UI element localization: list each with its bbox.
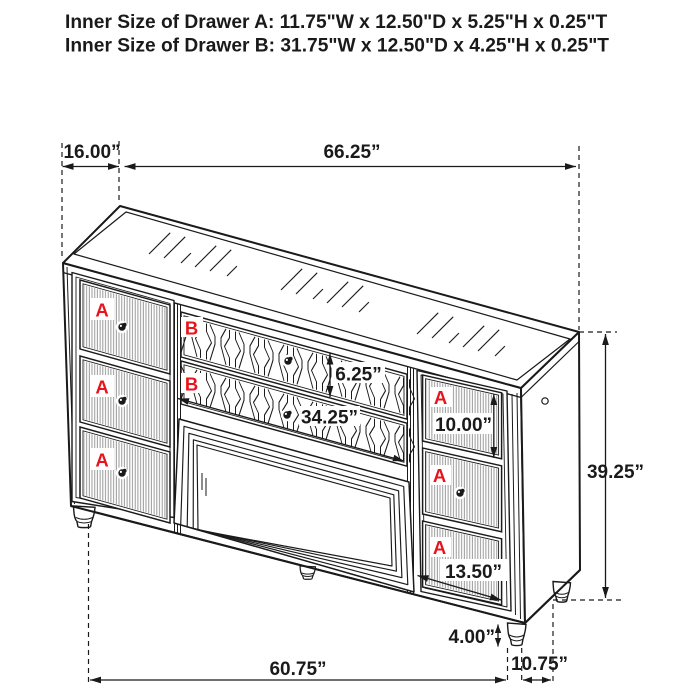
svg-text:13.50”: 13.50” bbox=[445, 562, 502, 583]
svg-text:A: A bbox=[433, 465, 446, 486]
svg-text:A: A bbox=[433, 537, 446, 558]
svg-text:A: A bbox=[95, 377, 108, 398]
svg-text:60.75”: 60.75” bbox=[269, 659, 326, 680]
svg-text:B: B bbox=[185, 318, 198, 339]
svg-text:66.25”: 66.25” bbox=[323, 142, 380, 163]
svg-text:10.75”: 10.75” bbox=[511, 654, 568, 675]
svg-text:39.25”: 39.25” bbox=[587, 462, 644, 483]
svg-text:Inner Size of Drawer B: 31.75": Inner Size of Drawer B: 31.75"W x 12.50"… bbox=[65, 36, 609, 57]
svg-text:A: A bbox=[434, 387, 447, 408]
svg-text:10.00”: 10.00” bbox=[435, 415, 492, 436]
svg-text:A: A bbox=[95, 300, 108, 321]
svg-text:6.25”: 6.25” bbox=[335, 365, 381, 386]
svg-text:A: A bbox=[95, 450, 108, 471]
svg-text:B: B bbox=[185, 374, 198, 395]
svg-text:16.00”: 16.00” bbox=[63, 142, 120, 163]
svg-text:Inner Size of Drawer A: 11.75": Inner Size of Drawer A: 11.75"W x 12.50"… bbox=[65, 12, 608, 33]
svg-text:4.00”: 4.00” bbox=[449, 627, 495, 648]
svg-text:34.25”: 34.25” bbox=[301, 408, 358, 429]
